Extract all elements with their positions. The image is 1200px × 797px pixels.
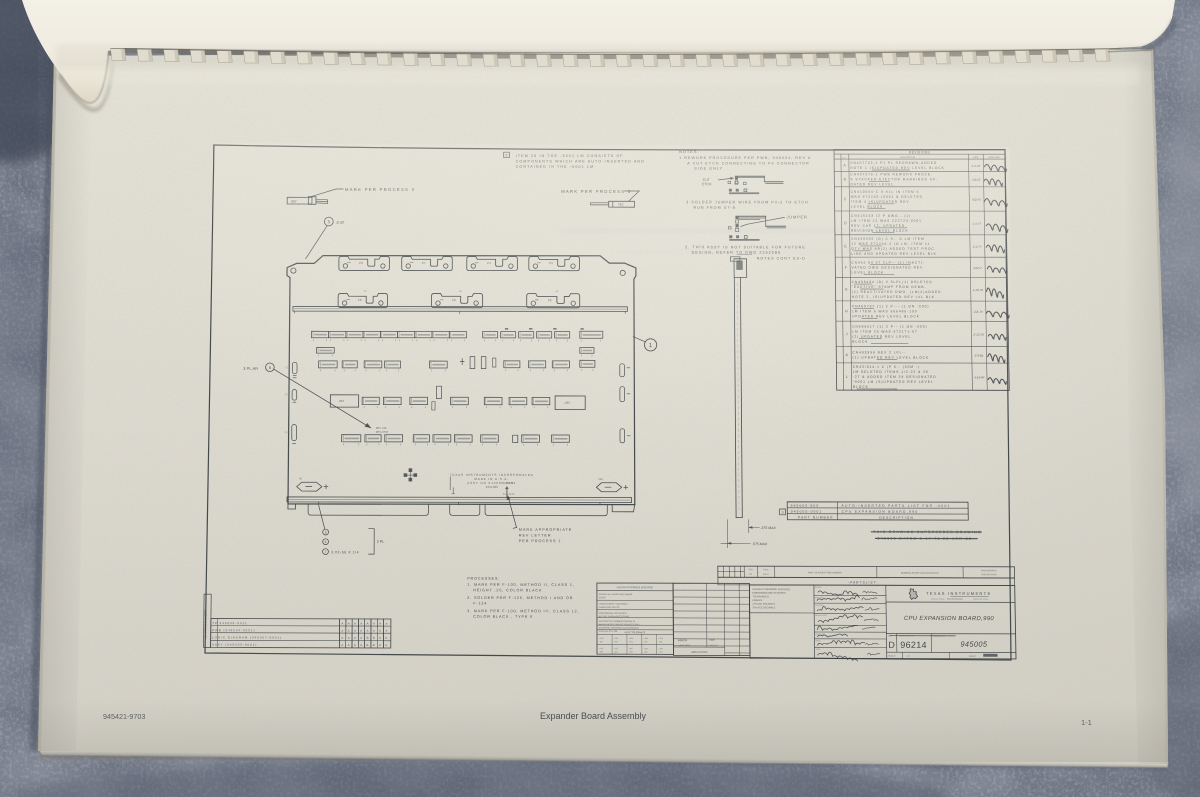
svg-text:A: A [354, 621, 356, 625]
svg-text:+.007: +.007 [643, 648, 648, 650]
svg-text:A: A [360, 621, 362, 625]
svg-text:A: A [360, 636, 362, 640]
svg-text:-.001: -.001 [599, 641, 603, 643]
svg-text:-.002: -.002 [614, 652, 618, 654]
svg-text:DESCRIPTION: DESCRIPTION [879, 516, 914, 520]
svg-text:A: A [354, 643, 356, 647]
svg-text:3: 3 [782, 511, 784, 515]
svg-text:+.007: +.007 [599, 648, 604, 650]
svg-text:-.001: -.001 [614, 641, 618, 643]
svg-text:USED ON: USED ON [709, 645, 718, 647]
svg-text:IDENT: IDENT [763, 574, 770, 576]
svg-text:-.002: -.002 [629, 652, 633, 654]
svg-text:SPECIFICATION: SPECIFICATION [981, 573, 997, 576]
svg-text:U98: U98 [598, 477, 603, 481]
svg-text:C: C [379, 636, 381, 640]
svg-text:.375 MAX: .375 MAX [760, 526, 776, 530]
svg-text:2 PL: 2 PL [377, 540, 385, 544]
svg-text:3,#2-56 X 1/4: 3,#2-56 X 1/4 [331, 550, 359, 554]
svg-text:-.001: -.001 [629, 641, 633, 643]
svg-text:945421-9703: 945421-9703 [103, 712, 145, 721]
svg-text:NOMENCLATURE OR DESCRIPTION: NOMENCLATURE OR DESCRIPTION [901, 572, 939, 575]
svg-text:3. MARK PER F-100, METHOD III,: 3. MARK PER F-100, METHOD III, CLASS 12, [467, 609, 579, 613]
svg-text:DESIGN APPD: DESIGN APPD [815, 614, 827, 617]
svg-text:CONCENTRICITY MACHINED: CONCENTRICITY MACHINED [599, 603, 628, 606]
svg-text:B: B [373, 636, 375, 640]
svg-text:HOLE TOLERANCE: HOLE TOLERANCE [625, 631, 646, 634]
svg-text:2 PLACE DECIMALS: 2 PLACE DECIMALS [752, 603, 775, 606]
svg-text:A: A [360, 629, 362, 633]
svg-text:ANGLES: ANGLES [752, 599, 762, 602]
svg-text:APPD: APPD [815, 639, 820, 642]
svg-text:TEXAS INSTRUMENTS: TEXAS INSTRUMENTS [926, 591, 991, 596]
svg-text:+.007: +.007 [629, 648, 634, 650]
svg-text:TP 945005-9011: TP 945005-9011 [212, 621, 247, 625]
svg-text:A: A [348, 643, 350, 647]
svg-text:NEXT ASSY: NEXT ASSY [679, 644, 690, 647]
svg-text:D: D [888, 640, 895, 650]
svg-text:A: A [367, 621, 369, 625]
svg-text:A: A [348, 636, 350, 640]
svg-text:MTG 5TM: MTG 5TM [376, 430, 389, 434]
svg-text:A: A [379, 621, 381, 625]
svg-text:MARK APPROPRIATE: MARK APPROPRIATE [519, 528, 572, 532]
svg-text:BEFORE FINISH PROCESSING: BEFORE FINISH PROCESSING [599, 616, 630, 618]
svg-text:A: A [367, 629, 369, 633]
svg-text:F-124: F-124 [473, 602, 487, 606]
svg-text:A: A [354, 629, 356, 633]
svg-text:PWB (945004-0001): PWB (945004-0001) [212, 628, 255, 632]
svg-text:+.004: +.004 [599, 638, 604, 640]
svg-text:WITH MIL-STD-100: WITH MIL-STD-100 [599, 631, 618, 633]
svg-text:REV LETTER: REV LETTER [519, 534, 552, 538]
svg-text:A: A [373, 621, 375, 625]
svg-text:.575 MAX: .575 MAX [752, 542, 768, 546]
svg-text:REV STATUS OF SHEETS: REV STATUS OF SHEETS [205, 610, 208, 639]
svg-text:A: A [360, 643, 362, 647]
svg-text:REMOVE ALL BURRS AND SHARP: REMOVE ALL BURRS AND SHARP [599, 593, 633, 596]
svg-text:SHEET: SHEET [969, 656, 977, 658]
svg-text:51 A #123: 51 A #123 [503, 492, 515, 496]
svg-text:B: B [367, 636, 369, 640]
svg-text:945005: 945005 [960, 640, 988, 649]
svg-text:945005-0001: 945005-0001 [791, 510, 823, 514]
svg-text:6: 6 [325, 540, 327, 544]
svg-text:INCORPORATED: INCORPORATED [947, 598, 964, 601]
svg-text:INTERPRET DRAWING IN ACCORDANC: INTERPRET DRAWING IN ACCORDANCE [599, 627, 640, 630]
svg-text:APPLICATION: APPLICATION [691, 651, 708, 654]
svg-text:+.004: +.004 [614, 638, 619, 640]
svg-text:E3 A 23A: E3 A 23A [503, 481, 514, 485]
svg-text:LOGIC DIAGRAM (945007-9901): LOGIC DIAGRAM (945007-9901) [212, 635, 282, 639]
svg-text:DALLAS TEXAS: DALLAS TEXAS [931, 598, 945, 601]
svg-text:A: A [341, 621, 343, 625]
svg-text:A: A [385, 629, 387, 633]
svg-text:PER PROCESS 1: PER PROCESS 1 [519, 539, 562, 543]
svg-text:CHECKED: CHECKED [815, 605, 824, 607]
svg-text:E3 A #23: E3 A #23 [486, 485, 498, 489]
svg-text:A: A [373, 629, 375, 633]
svg-text:-.002: -.002 [643, 652, 647, 654]
svg-text:-.002: -.002 [599, 651, 603, 653]
svg-text:UNLESS OTHERWISE SPECIFIED: UNLESS OTHERWISE SPECIFIED [617, 587, 654, 589]
svg-text:A: A [341, 636, 343, 640]
svg-text:A: A [341, 643, 343, 647]
svg-text:C: C [379, 643, 381, 647]
svg-text:DRAWN: DRAWN [815, 586, 822, 589]
svg-text:945005: 945005 [678, 638, 688, 642]
svg-text:TOLERANCES:: TOLERANCES: [752, 595, 769, 598]
svg-text:A: A [348, 629, 350, 633]
svg-text:A: A [341, 629, 343, 633]
svg-text:-.001: -.001 [658, 641, 662, 643]
svg-text:AUTO-INSERTED PARTS LIST FOR -: AUTO-INSERTED PARTS LIST FOR -0001 [841, 504, 950, 508]
svg-text:+.004: +.004 [629, 638, 634, 640]
svg-text:2. SOLDER PER F-125, METHOD I: 2. SOLDER PER F-125, METHOD I AND OR [467, 596, 573, 600]
svg-text:+.004: +.004 [658, 638, 663, 640]
svg-text:K: K [385, 643, 387, 647]
svg-text:DESCRIPTIVE NUMBERS SHOWN IN: DESCRIPTIVE NUMBERS SHOWN IN [599, 621, 636, 623]
svg-text:PROCESSES:: PROCESSES: [467, 577, 500, 581]
svg-text:Expander Board Assembly: Expander Board Assembly [540, 711, 647, 721]
svg-text:COLOR BLACK , TYPE 6: COLOR BLACK , TYPE 6 [473, 615, 533, 619]
svg-text:7906: 7906 [709, 638, 715, 642]
svg-text:A: A [385, 622, 387, 626]
svg-text:K: K [385, 636, 387, 640]
svg-text:HOUSTON TEXAS: HOUSTON TEXAS [973, 598, 989, 601]
svg-text:7: 7 [325, 550, 327, 554]
svg-text:1. MARK PER F-100, METHOD II,: 1. MARK PER F-100, METHOD II, CLASS 1, [467, 583, 575, 587]
svg-text:PARENTHESES FOR REFERENCES ONL: PARENTHESES FOR REFERENCES ONLY [599, 623, 641, 626]
svg-text:MTL 13A: MTL 13A [376, 426, 387, 430]
svg-text:5: 5 [325, 530, 327, 534]
svg-text:PART NUMBER: PART NUMBER [798, 516, 834, 520]
svg-text:CPU EXPANSION BOARD,990: CPU EXPANSION BOARD,990 [904, 616, 994, 622]
svg-text:+.007: +.007 [614, 648, 619, 650]
svg-text:A: A [379, 629, 381, 633]
svg-text:B: B [366, 643, 368, 647]
svg-text:A: A [348, 621, 350, 625]
svg-text:CODE: CODE [763, 569, 769, 571]
svg-text:DIAMETERS .010 TIR: DIAMETERS .010 TIR [599, 606, 620, 609]
svg-text:EDGES: EDGES [599, 597, 607, 599]
svg-text:- P A R T S L I S T -: - P A R T S L I S T - [848, 580, 879, 584]
svg-text:HEIGHT .25, COLOR BLACK: HEIGHT .25, COLOR BLACK [473, 588, 542, 592]
svg-text:+.007: +.007 [658, 648, 663, 650]
svg-text:U6: U6 [299, 476, 303, 480]
svg-text:DIMENSIONAL LIMITS APPLY: DIMENSIONAL LIMITS APPLY [599, 612, 628, 615]
svg-text:+.004: +.004 [643, 638, 648, 640]
svg-text:APPD: APPD [816, 648, 821, 651]
svg-text:CPU EXPANSION BOARD,990: CPU EXPANSION BOARD,990 [842, 510, 919, 514]
svg-text:PROCUREMENT: PROCUREMENT [981, 570, 997, 572]
svg-text:945005-500: 945005-500 [791, 504, 820, 508]
svg-text:3 PLACE DECIMALS: 3 PLACE DECIMALS [752, 606, 775, 609]
svg-text:DIMENSIONS ARE IN INCHES: DIMENSIONS ARE IN INCHES [752, 592, 786, 595]
svg-text:ITEM: ITEM [748, 569, 753, 571]
svg-text:ASSY (945005-0001): ASSY (945005-0001) [212, 643, 257, 647]
svg-text:96214: 96214 [900, 640, 927, 650]
svg-text:A: A [354, 636, 356, 640]
svg-text:PART OR IDENTIFYING NUMBER: PART OR IDENTIFYING NUMBER [808, 571, 842, 574]
svg-text:-.002: -.002 [658, 652, 662, 654]
svg-text:B: B [373, 643, 375, 647]
svg-text:1-1: 1-1 [1081, 718, 1092, 727]
svg-text:SCALE: SCALE [888, 655, 896, 658]
svg-text:-.001: -.001 [643, 641, 647, 643]
